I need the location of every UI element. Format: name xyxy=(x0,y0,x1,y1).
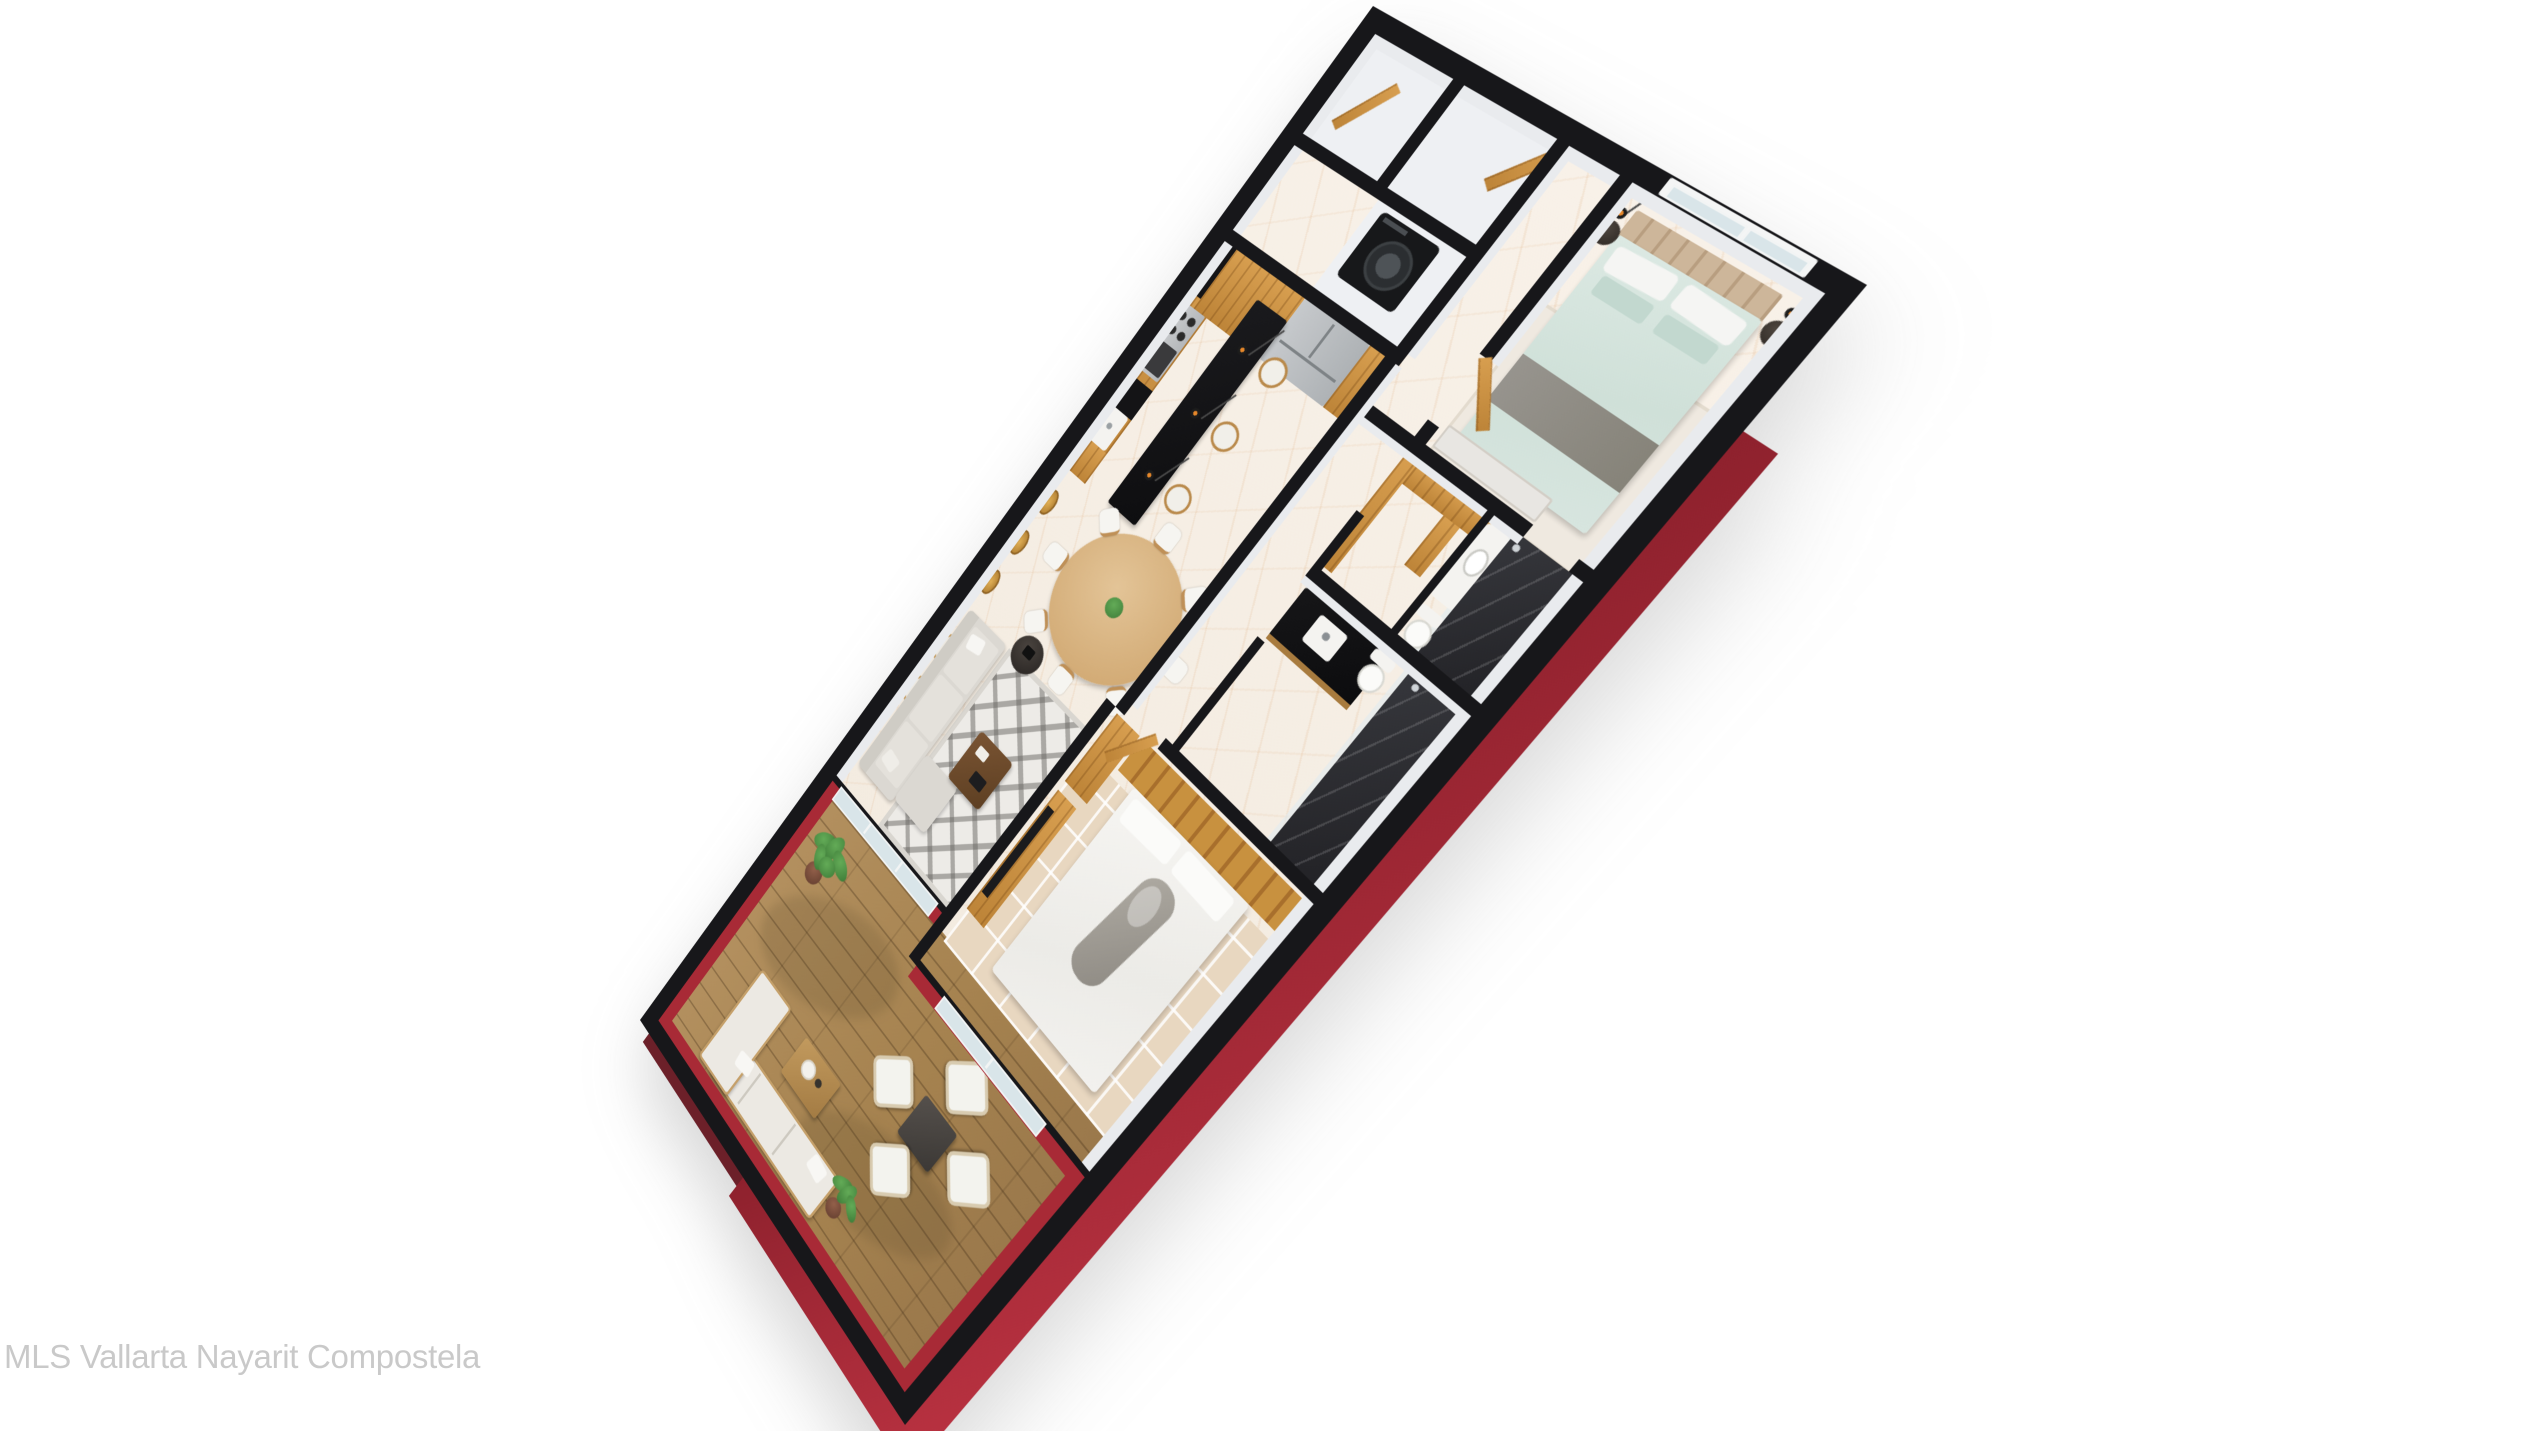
terrace-chair xyxy=(873,1055,913,1109)
masterbed-door-leaf xyxy=(1476,357,1493,431)
screenshot-canvas: MLS Vallarta Nayarit Compostela xyxy=(0,0,2545,1431)
floor-plan-render xyxy=(640,6,1867,1425)
terrace-chair xyxy=(947,1150,991,1209)
dining-chair xyxy=(1099,507,1120,538)
watermark-text: MLS Vallarta Nayarit Compostela xyxy=(4,1338,480,1376)
dining-chair xyxy=(1024,609,1048,634)
terrace-chair xyxy=(870,1142,911,1199)
